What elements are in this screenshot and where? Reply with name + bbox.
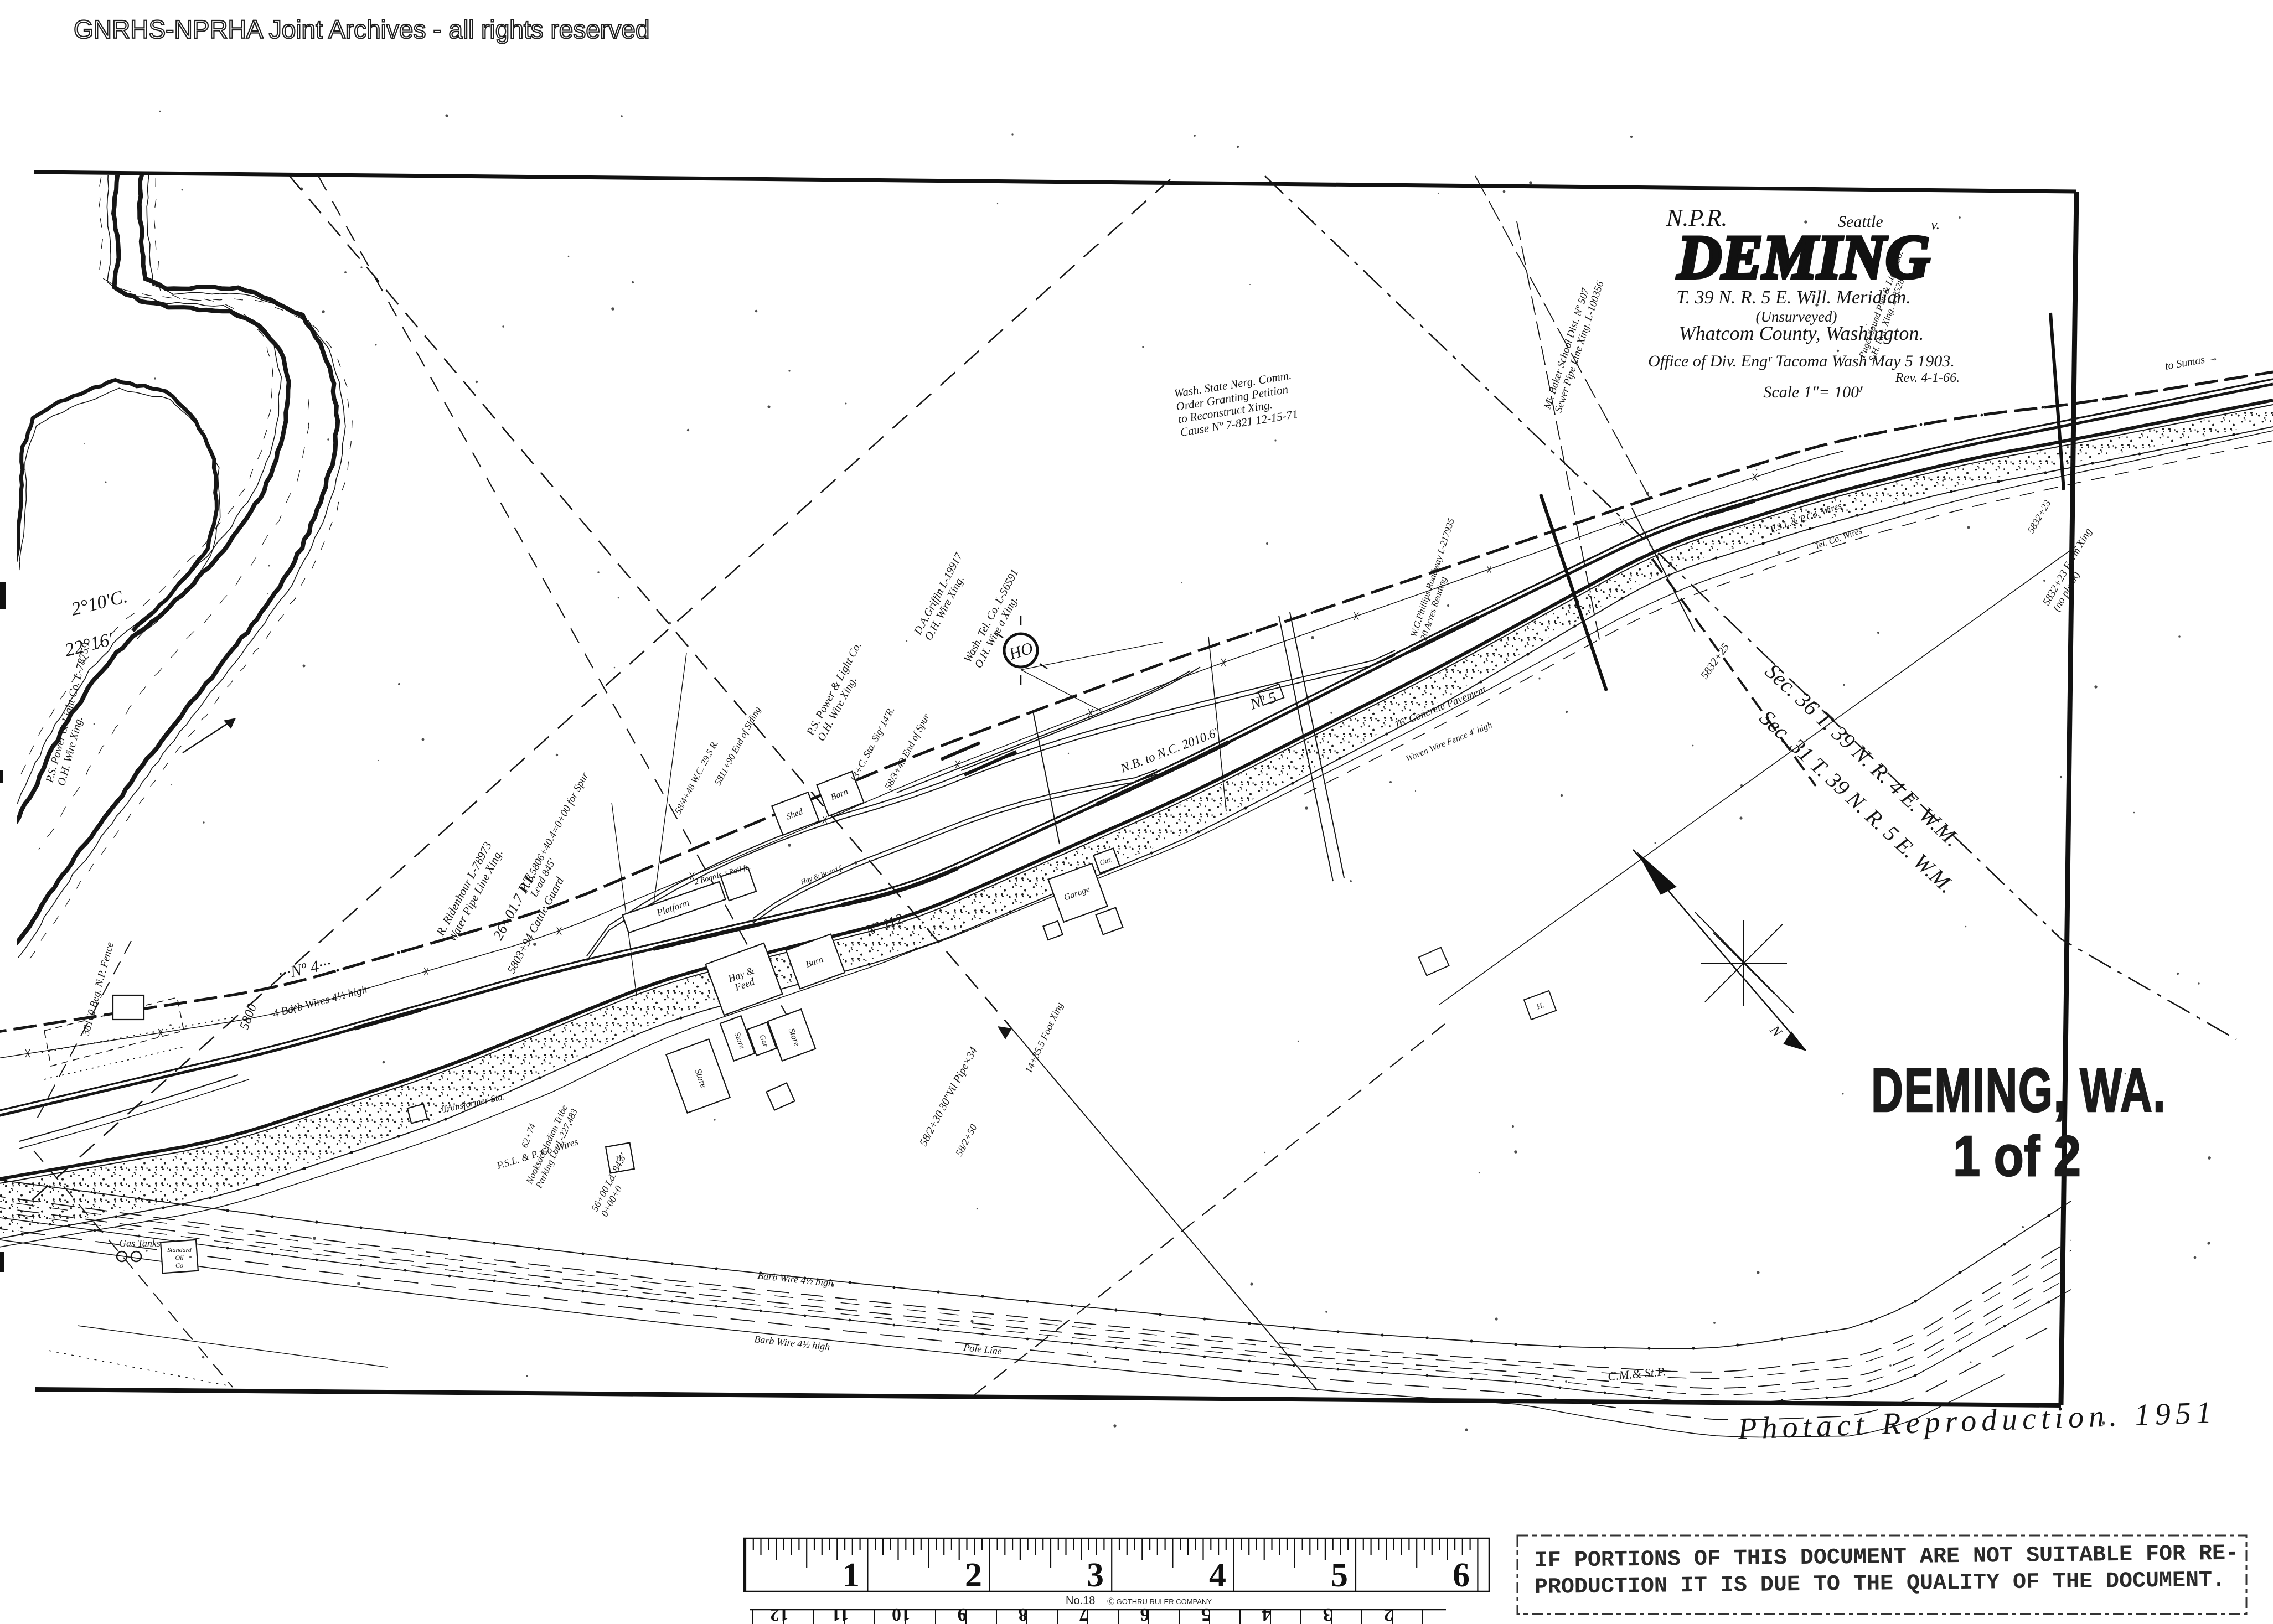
svg-text:8: 8 (1019, 1604, 1028, 1624)
svg-text:4: 4 (1262, 1604, 1272, 1624)
svg-text:DEMING, WA.: DEMING, WA. (1871, 1056, 2166, 1125)
svg-text:DEMING: DEMING (1677, 223, 1930, 292)
svg-text:4: 4 (1209, 1556, 1226, 1594)
svg-text:3: 3 (1087, 1556, 1104, 1594)
svg-text:Rev. 4-1-66.: Rev. 4-1-66. (1895, 371, 1960, 385)
svg-text:11: 11 (831, 1604, 849, 1624)
svg-text:5: 5 (1331, 1556, 1348, 1594)
svg-text:Ⓒ GOTHRU RULER COMPANY: Ⓒ GOTHRU RULER COMPANY (1107, 1597, 1212, 1606)
svg-text:T. 39 N. R. 5 E. Will. Merid: T. 39 N. R. 5 E. Will. Meridian. (1676, 287, 1910, 308)
svg-text:Scale 1″= 100′: Scale 1″= 100′ (1763, 383, 1863, 401)
svg-text:3: 3 (1323, 1604, 1332, 1624)
svg-text:Standard: Standard (167, 1246, 192, 1254)
svg-text:Gas Tanks: Gas Tanks (119, 1238, 161, 1249)
svg-text:6: 6 (1140, 1604, 1150, 1624)
svg-text:v.: v. (1931, 216, 1940, 232)
svg-text:10: 10 (892, 1604, 911, 1624)
svg-text:Office of Div. Engʳ Tacoma Wa: Office of Div. Engʳ Tacoma Wash May 5 19… (1648, 352, 1955, 370)
svg-text:2: 2 (965, 1556, 982, 1594)
svg-text:1 of 2: 1 of 2 (1953, 1124, 2081, 1188)
svg-text:9: 9 (958, 1604, 967, 1624)
svg-text:Co: Co (175, 1261, 183, 1269)
svg-text:Oil: Oil (175, 1254, 184, 1261)
svg-text:Whatcom County, Washington.: Whatcom County, Washington. (1679, 322, 1924, 344)
svg-text:1: 1 (843, 1556, 860, 1594)
svg-text:5: 5 (1201, 1604, 1211, 1624)
svg-text:GNRHS-NPRHA Joint Archives - a: GNRHS-NPRHA Joint Archives - all rights … (74, 15, 649, 44)
svg-text:12: 12 (770, 1604, 789, 1624)
svg-text:6: 6 (1453, 1556, 1470, 1594)
svg-text:2: 2 (1384, 1604, 1393, 1624)
svg-text:7: 7 (1079, 1604, 1089, 1624)
